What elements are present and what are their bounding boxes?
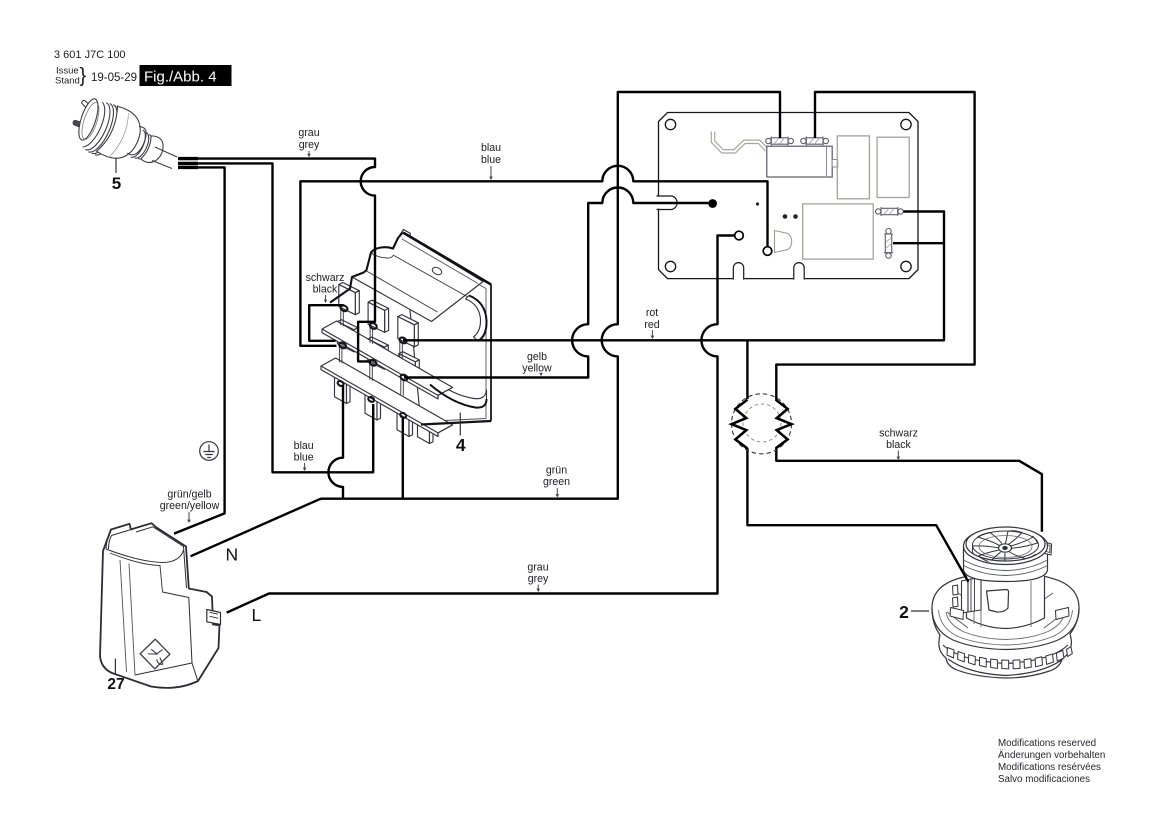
svg-text:green/yellow: green/yellow <box>160 500 220 512</box>
svg-text:L: L <box>252 605 262 625</box>
svg-text:green: green <box>543 476 570 488</box>
svg-text:black: black <box>313 284 338 296</box>
svg-text:Modifications reserved: Modifications reserved <box>998 738 1096 749</box>
svg-text:blau: blau <box>294 440 314 452</box>
svg-text:gelb: gelb <box>527 351 547 363</box>
svg-text:grau: grau <box>527 562 548 574</box>
svg-text:black: black <box>886 439 911 451</box>
svg-text:schwarz: schwarz <box>306 272 345 284</box>
svg-text:blau: blau <box>481 142 501 154</box>
svg-text:19-05-29: 19-05-29 <box>91 72 137 84</box>
svg-text:schwarz: schwarz <box>879 428 918 440</box>
svg-text:yellow: yellow <box>522 363 552 375</box>
svg-text:grau: grau <box>298 127 319 139</box>
svg-text:grün: grün <box>546 465 567 477</box>
svg-text:}: } <box>80 65 87 87</box>
svg-text:Salvo modificaciones: Salvo modificaciones <box>998 774 1090 785</box>
svg-text:N: N <box>226 545 239 565</box>
svg-text:Modifications resérvées: Modifications resérvées <box>998 762 1101 773</box>
svg-text:Fig./Abb. 4: Fig./Abb. 4 <box>144 69 217 86</box>
svg-text:Änderungen vorbehalten: Änderungen vorbehalten <box>998 750 1105 761</box>
svg-text:grün/gelb: grün/gelb <box>167 489 211 501</box>
svg-text:2: 2 <box>899 602 909 622</box>
svg-text:Stand: Stand <box>55 76 80 87</box>
svg-text:blue: blue <box>481 154 501 166</box>
svg-text:rot: rot <box>646 307 658 319</box>
svg-text:27: 27 <box>107 676 124 693</box>
svg-text:5: 5 <box>112 174 121 193</box>
svg-text:4: 4 <box>456 435 466 455</box>
svg-text:grey: grey <box>299 139 320 151</box>
svg-text:grey: grey <box>528 573 549 585</box>
svg-text:3 601 J7C 100: 3 601 J7C 100 <box>54 49 126 61</box>
svg-text:red: red <box>644 319 659 331</box>
svg-text:blue: blue <box>294 452 314 464</box>
